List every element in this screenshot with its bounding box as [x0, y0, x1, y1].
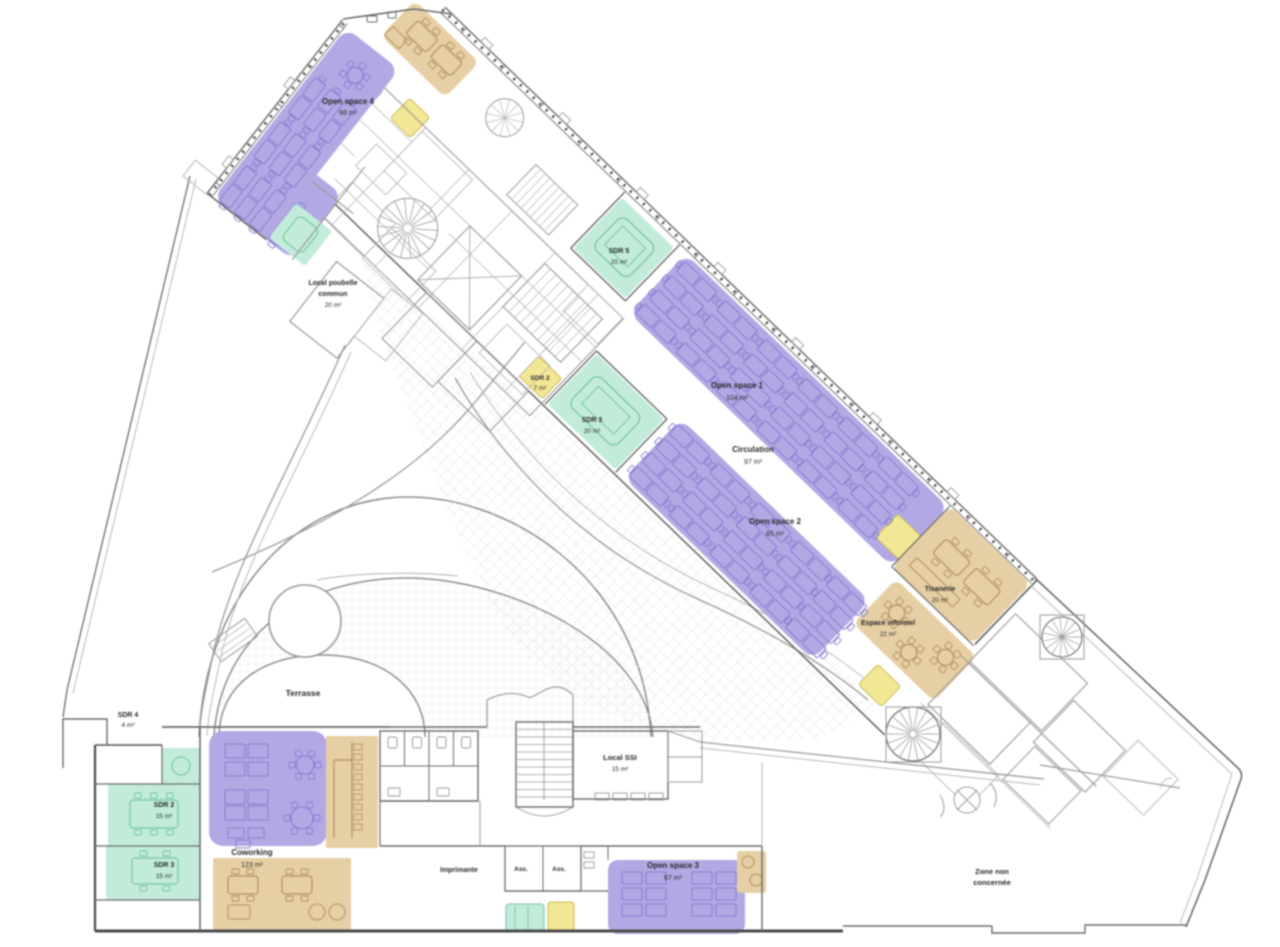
- svg-text:concernée: concernée: [973, 878, 1011, 887]
- svg-text:7 m²: 7 m²: [534, 385, 548, 392]
- svg-text:67 m²: 67 m²: [664, 875, 683, 882]
- svg-text:Tisanerie: Tisanerie: [925, 586, 956, 593]
- svg-text:Open space 2: Open space 2: [749, 517, 802, 526]
- svg-text:20 m²: 20 m²: [584, 428, 601, 435]
- svg-text:104 m²: 104 m²: [726, 395, 748, 402]
- svg-text:Open space 3: Open space 3: [647, 861, 700, 870]
- svg-text:97 m²: 97 m²: [744, 459, 763, 466]
- svg-text:Ass.: Ass.: [514, 866, 528, 873]
- svg-text:85 m²: 85 m²: [766, 531, 785, 538]
- svg-text:Local SSI: Local SSI: [603, 753, 637, 762]
- svg-text:Ass.: Ass.: [552, 866, 566, 873]
- svg-text:commun: commun: [318, 291, 347, 298]
- svg-text:SDR 5: SDR 5: [609, 248, 630, 255]
- svg-text:Coworking: Coworking: [231, 848, 272, 857]
- svg-text:Zone non: Zone non: [975, 867, 1009, 876]
- svg-text:Circulation: Circulation: [732, 445, 774, 454]
- svg-text:22 m²: 22 m²: [880, 631, 897, 638]
- svg-text:20 m²: 20 m²: [325, 302, 342, 309]
- svg-text:15 m²: 15 m²: [156, 873, 173, 880]
- svg-text:SDR 2: SDR 2: [154, 802, 175, 809]
- svg-text:20 m²: 20 m²: [611, 259, 628, 266]
- svg-text:4 m²: 4 m²: [122, 722, 136, 729]
- svg-text:SDR 2: SDR 2: [530, 375, 550, 382]
- svg-text:Espace informel: Espace informel: [861, 620, 915, 627]
- svg-text:15 m²: 15 m²: [156, 813, 173, 820]
- svg-text:98 m²: 98 m²: [339, 110, 358, 117]
- svg-text:Open space 4: Open space 4: [322, 97, 375, 106]
- svg-text:SDR 4: SDR 4: [118, 712, 139, 719]
- svg-text:Open space 1: Open space 1: [711, 381, 764, 390]
- svg-text:SDR 3: SDR 3: [582, 417, 603, 424]
- svg-text:15 m²: 15 m²: [612, 766, 629, 773]
- svg-text:SDR 3: SDR 3: [154, 862, 175, 869]
- svg-text:20 m²: 20 m²: [932, 597, 949, 604]
- svg-text:123 m²: 123 m²: [241, 862, 263, 869]
- svg-text:Local poubelle: Local poubelle: [308, 280, 357, 287]
- svg-text:Terrasse: Terrasse: [286, 688, 321, 698]
- svg-text:Imprimante: Imprimante: [440, 867, 478, 874]
